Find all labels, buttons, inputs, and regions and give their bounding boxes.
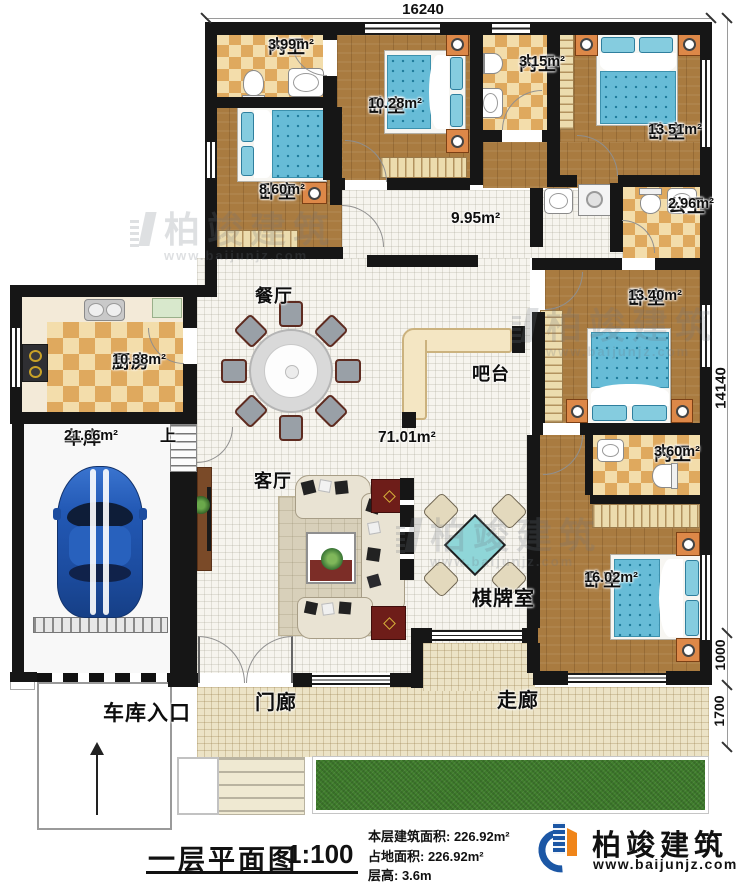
pillow xyxy=(685,600,699,636)
nightstand xyxy=(446,32,469,56)
bed-mattress xyxy=(387,55,431,129)
wall xyxy=(470,22,483,185)
dining-chair xyxy=(279,415,303,441)
brand-logo-tower-orange xyxy=(567,828,577,856)
room-area: 16.02m² xyxy=(584,570,638,586)
dining-chair xyxy=(335,359,361,383)
toilet xyxy=(484,53,503,74)
room-area: 2.96m² xyxy=(668,196,714,212)
garage-floor-grate xyxy=(33,617,168,633)
dining-chair xyxy=(221,359,247,383)
pillow xyxy=(241,112,254,142)
bed-sheet xyxy=(659,559,683,637)
room-area: 8.60m² xyxy=(259,182,305,198)
room-name: 餐厅 xyxy=(255,286,293,306)
bed-bedroom-c xyxy=(596,32,678,126)
plant xyxy=(321,548,343,570)
garage-door-dashed xyxy=(37,673,168,682)
nightstand xyxy=(302,182,327,204)
room-area: 13.51m² xyxy=(648,122,702,138)
wall xyxy=(10,412,197,424)
wall xyxy=(183,364,197,412)
bed-sheet xyxy=(591,384,669,406)
laundry-basin xyxy=(544,188,573,214)
watermark-bar xyxy=(138,212,156,246)
nightstand xyxy=(676,638,700,662)
car-mirror xyxy=(139,508,147,520)
car-stripe xyxy=(103,469,109,615)
wall xyxy=(390,673,423,687)
car-roof xyxy=(69,526,131,566)
watermark-url: www.baijunjz.com xyxy=(546,344,718,359)
wall xyxy=(215,97,330,108)
burner xyxy=(29,366,42,378)
floor-plan: 柏竣建筑 www.baijunjz.com 柏竣建筑 www.baijunjz.… xyxy=(0,0,750,885)
brand-logo-tower-blue xyxy=(553,822,565,854)
pillow xyxy=(632,405,667,421)
wall xyxy=(590,495,700,504)
sink-bowl xyxy=(88,303,104,317)
lawn xyxy=(313,757,708,813)
wall xyxy=(367,255,478,267)
sofa-pillow xyxy=(367,521,381,535)
toilet xyxy=(652,464,672,488)
window xyxy=(568,673,666,683)
sofa-pillow xyxy=(366,547,381,562)
wall xyxy=(10,672,37,682)
dim-line-top xyxy=(205,18,712,19)
dining-table-center xyxy=(285,365,299,379)
kitchen-sink xyxy=(84,299,125,321)
nightstand xyxy=(676,532,700,556)
bed-mattress xyxy=(600,71,676,124)
dim-right-bottom: 1700 xyxy=(711,695,727,726)
nightstand xyxy=(575,33,598,56)
window xyxy=(205,142,217,178)
coffee-table xyxy=(306,532,356,584)
toilet-tank xyxy=(671,463,678,489)
washing-machine-door xyxy=(586,191,603,208)
sofa-pillow xyxy=(318,479,332,493)
wall xyxy=(618,175,712,187)
room-area: 13.40m² xyxy=(628,288,682,304)
room-name: 棋牌室 xyxy=(472,588,535,610)
wall xyxy=(10,285,217,297)
room-area: 10.38m² xyxy=(112,352,166,368)
wall xyxy=(10,297,22,328)
cutting-board xyxy=(152,298,182,318)
wall xyxy=(402,412,416,428)
pillow xyxy=(450,94,463,127)
wall xyxy=(527,643,540,673)
wall xyxy=(580,423,712,435)
side-table xyxy=(371,606,406,640)
closet-bedroom-e xyxy=(592,504,700,528)
dining-table xyxy=(249,329,333,413)
sofa-pillow xyxy=(334,480,348,494)
wall xyxy=(330,107,342,205)
wall xyxy=(470,130,502,142)
bed-bedroom-e xyxy=(610,554,702,640)
toilet xyxy=(243,70,264,96)
bed-bedroom-b xyxy=(384,50,466,134)
pillow xyxy=(639,37,673,53)
nightstand xyxy=(671,399,693,423)
car-stripe xyxy=(90,469,96,615)
porch-steps xyxy=(218,757,305,815)
watermark-text: 柏竣建筑 xyxy=(164,212,336,248)
stove xyxy=(22,344,48,382)
room-area: 3.15m² xyxy=(519,54,565,70)
wall xyxy=(522,628,538,643)
wall xyxy=(205,22,365,35)
floor-corridor-notch xyxy=(423,643,535,691)
wall xyxy=(530,188,543,247)
pillow xyxy=(685,560,699,596)
room-area: 9.95m² xyxy=(451,210,500,227)
wall xyxy=(170,472,197,673)
watermark-bar xyxy=(130,220,139,248)
watermark-bar xyxy=(404,518,422,552)
tv xyxy=(207,487,211,551)
wall xyxy=(168,673,198,687)
pillow xyxy=(601,37,635,53)
wall xyxy=(532,423,543,435)
stairs-direction: 上 xyxy=(160,428,177,446)
car-mirror xyxy=(53,508,61,520)
nightstand xyxy=(446,129,469,153)
bar-counter-leg xyxy=(402,340,427,420)
watermark: 柏竣建筑 www.baijunjz.com xyxy=(512,308,718,359)
watermark-bar xyxy=(520,308,538,342)
toilet xyxy=(640,194,661,214)
garage-entry-arrow-head xyxy=(90,742,104,755)
wall xyxy=(323,22,337,40)
dim-top-value: 16240 xyxy=(402,1,444,18)
dim-right-mid: 1000 xyxy=(712,639,728,670)
pillow xyxy=(241,146,254,176)
watermark-logo-icon xyxy=(512,308,538,348)
nightstand xyxy=(566,399,588,423)
bed-sheet xyxy=(429,55,449,129)
watermark: 柏竣建筑 www.baijunjz.com xyxy=(396,518,602,569)
window xyxy=(10,328,22,387)
room-name: 门廊 xyxy=(255,692,297,714)
sink-bowl xyxy=(106,303,122,317)
window xyxy=(700,555,712,640)
brand-logo xyxy=(538,820,590,878)
watermark-url: www.baijunjz.com xyxy=(164,248,336,263)
room-area: 10.28m² xyxy=(368,96,422,112)
watermark-text: 柏竣建筑 xyxy=(430,518,602,554)
wall xyxy=(533,671,568,685)
wall xyxy=(666,671,712,685)
watermark-logo-icon xyxy=(130,212,156,252)
window xyxy=(432,630,522,641)
info-floor-height: 层高: 3.6m xyxy=(368,865,432,884)
porch-planter xyxy=(177,757,219,815)
watermark-bar xyxy=(512,316,521,344)
bed-mattress xyxy=(272,110,324,178)
window xyxy=(312,675,390,685)
pillow xyxy=(592,405,627,421)
dim-right-total: 14140 xyxy=(713,367,730,409)
wall xyxy=(12,424,24,676)
side-table-medallion xyxy=(383,617,396,630)
wall xyxy=(205,22,217,142)
wall xyxy=(183,297,197,328)
room-area: 3.60m² xyxy=(654,444,700,460)
window xyxy=(365,22,440,35)
title-underline xyxy=(146,871,358,874)
room-name: 吧台 xyxy=(472,364,510,384)
nightstand xyxy=(678,33,701,56)
wall xyxy=(440,22,492,35)
room-name: 走廊 xyxy=(497,690,539,712)
room-area: 21.66m² xyxy=(64,428,118,444)
info-floor-area: 本层建筑面积: 226.92m² xyxy=(368,826,510,845)
car-rear-window xyxy=(69,564,131,582)
wall xyxy=(293,673,312,687)
bed-bedroom-a xyxy=(237,106,327,182)
pillow xyxy=(450,57,463,90)
wall xyxy=(585,435,593,495)
watermark-logo-icon xyxy=(396,518,422,558)
watermark: 柏竣建筑 www.baijunjz.com xyxy=(130,212,336,263)
wall xyxy=(547,175,577,187)
sofa-pillow xyxy=(338,601,351,614)
sofa-pillow xyxy=(321,602,335,616)
wall xyxy=(700,147,712,305)
watermark-url: www.baijunjz.com xyxy=(430,554,602,569)
wall xyxy=(532,258,622,270)
window xyxy=(492,22,530,35)
wall xyxy=(700,367,712,555)
wall xyxy=(700,22,712,60)
wall xyxy=(547,22,560,175)
washbasin xyxy=(597,439,624,462)
wall xyxy=(387,178,470,190)
burner xyxy=(29,350,42,362)
room-area: 3.99m² xyxy=(268,37,314,53)
room-area: 71.01m² xyxy=(378,429,436,446)
car-windshield xyxy=(67,502,133,528)
car xyxy=(57,466,143,618)
garage-entry-arrow-line xyxy=(96,755,98,815)
plan-scale: 1:100 xyxy=(287,839,354,870)
sofa-pillow xyxy=(304,601,318,615)
side-table-medallion xyxy=(383,490,396,503)
brand-website: www.baijunjz.com xyxy=(593,856,738,872)
room-name: 车库入口 xyxy=(103,702,191,726)
room-name: 客厅 xyxy=(254,471,292,491)
closet-bedroom-b xyxy=(380,157,467,178)
watermark-bar xyxy=(396,526,405,554)
watermark-text: 柏竣建筑 xyxy=(546,308,718,344)
info-land-area: 占地面积: 226.92m² xyxy=(368,846,484,865)
